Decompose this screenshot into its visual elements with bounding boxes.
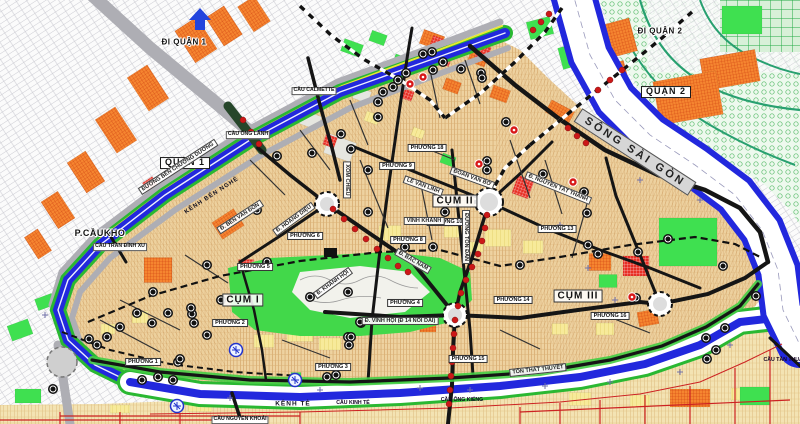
parcel-number-badge xyxy=(355,317,365,327)
parcel-number-badge xyxy=(363,207,373,217)
parcel-number-badge xyxy=(440,207,450,217)
parcel-number-badge xyxy=(378,87,388,97)
parcel-number-badge xyxy=(148,287,158,297)
map-base-graphics xyxy=(0,0,800,424)
station-dot-icon xyxy=(374,246,380,252)
parcel-number-badge xyxy=(147,318,157,328)
station-dot-icon xyxy=(469,264,475,270)
utility-blue-icon xyxy=(171,400,184,413)
station-dot-icon xyxy=(248,129,254,135)
parcel-number-badge xyxy=(252,205,262,215)
parcel-number-badge xyxy=(663,234,673,244)
parcel-number-badge xyxy=(202,330,212,340)
parcel-number-badge xyxy=(482,165,492,175)
station-dot-icon xyxy=(574,133,580,139)
parcel-number-badge xyxy=(346,144,356,154)
station-dot-icon xyxy=(484,212,490,218)
station-dot-icon xyxy=(607,77,613,83)
parcel-number-badge xyxy=(702,354,712,364)
parcel-number-badge xyxy=(186,303,196,313)
parcel-number-badge xyxy=(373,97,383,107)
parcel-number-badge xyxy=(175,354,185,364)
facility-red-icon xyxy=(569,178,577,186)
parcel-number-badge xyxy=(84,334,94,344)
parcel-number-badge xyxy=(272,151,282,161)
station-dot-icon xyxy=(240,117,246,123)
facility-red-icon xyxy=(475,160,483,168)
parcel-number-badge xyxy=(579,187,589,197)
parcel-number-badge xyxy=(427,47,437,57)
station-dot-icon xyxy=(546,11,552,17)
station-dot-icon xyxy=(452,317,458,323)
parcel-number-badge xyxy=(132,308,142,318)
parcel-number-badge xyxy=(438,57,448,67)
parcel-number-badge xyxy=(593,249,603,259)
facility-red-icon xyxy=(406,80,414,88)
station-dot-icon xyxy=(448,373,454,379)
black-building-symbol xyxy=(324,248,337,257)
parcel-number-badge xyxy=(153,372,163,382)
station-dot-icon xyxy=(449,359,455,365)
station-dot-icon xyxy=(395,263,401,269)
station-dot-icon xyxy=(619,67,625,73)
parcel-number-badge xyxy=(115,322,125,332)
station-dot-icon xyxy=(565,125,571,131)
parcel-number-badge xyxy=(48,384,58,394)
parcel-number-badge xyxy=(701,333,711,343)
parcel-number-badge xyxy=(633,247,643,257)
station-dot-icon xyxy=(475,251,481,257)
facility-red-icon xyxy=(628,293,636,301)
parcel-number-badge xyxy=(331,370,341,380)
station-dot-icon xyxy=(463,277,469,283)
parcel-number-badge xyxy=(137,375,147,385)
station-dot-icon xyxy=(352,226,358,232)
parcel-number-badge xyxy=(189,318,199,328)
station-dot-icon xyxy=(455,303,461,309)
parcel-number-badge xyxy=(322,372,332,382)
facility-red-icon xyxy=(419,73,427,81)
parcel-number-badge xyxy=(751,291,761,301)
parcel-number-badge xyxy=(401,68,411,78)
station-dot-icon xyxy=(451,331,457,337)
parcel-number-badge xyxy=(102,332,112,342)
parcel-number-badge xyxy=(307,148,317,158)
parcel-number-badge xyxy=(418,49,428,59)
parcel-number-badge xyxy=(262,257,272,267)
parcel-number-badge xyxy=(216,295,226,305)
parcel-number-badge xyxy=(343,287,353,297)
station-dot-icon xyxy=(450,345,456,351)
station-dot-icon xyxy=(583,140,589,146)
parcel-number-badge xyxy=(711,345,721,355)
parcel-number-badge xyxy=(373,112,383,122)
parcel-number-badge xyxy=(168,375,178,385)
parcel-number-badge xyxy=(305,292,315,302)
station-dot-icon xyxy=(482,225,488,231)
parcel-number-badge xyxy=(336,129,346,139)
parcel-number-badge xyxy=(163,308,173,318)
parcel-number-badge xyxy=(583,240,593,250)
station-dot-icon xyxy=(538,19,544,25)
parcel-number-badge xyxy=(428,65,438,75)
planning-map-canvas[interactable]: ĐI QUẬN 1ĐI QUẬN 2QUẬN 1QUẬN 2P.CẦUKHOCỤ… xyxy=(0,0,800,424)
station-dot-icon xyxy=(405,269,411,275)
parcel-number-badge xyxy=(428,242,438,252)
parcel-number-badge xyxy=(363,165,373,175)
parcel-number-badge xyxy=(388,82,398,92)
utility-blue-icon xyxy=(230,344,243,357)
station-dot-icon xyxy=(530,27,536,33)
station-dot-icon xyxy=(363,236,369,242)
parcel-number-badge xyxy=(92,340,102,350)
parcel-number-badge xyxy=(477,73,487,83)
station-dot-icon xyxy=(446,401,452,407)
parcel-number-badge xyxy=(718,261,728,271)
station-dot-icon xyxy=(330,206,336,212)
facility-red-icon xyxy=(510,126,518,134)
parcel-number-badge xyxy=(344,340,354,350)
parcel-number-badge xyxy=(400,242,410,252)
parcel-number-badge xyxy=(202,260,212,270)
parcel-number-badge xyxy=(538,169,548,179)
parcel-number-badge xyxy=(501,117,511,127)
station-dot-icon xyxy=(458,290,464,296)
station-dot-icon xyxy=(447,387,453,393)
parcel-number-badge xyxy=(456,64,466,74)
parcel-number-badge xyxy=(515,260,525,270)
utility-blue-icon xyxy=(289,374,302,387)
parcel-number-badge xyxy=(582,208,592,218)
parcel-number-badge xyxy=(720,323,730,333)
station-dot-icon xyxy=(256,141,262,147)
station-dot-icon xyxy=(385,255,391,261)
station-dot-icon xyxy=(479,238,485,244)
station-dot-icon xyxy=(341,216,347,222)
station-dot-icon xyxy=(595,87,601,93)
